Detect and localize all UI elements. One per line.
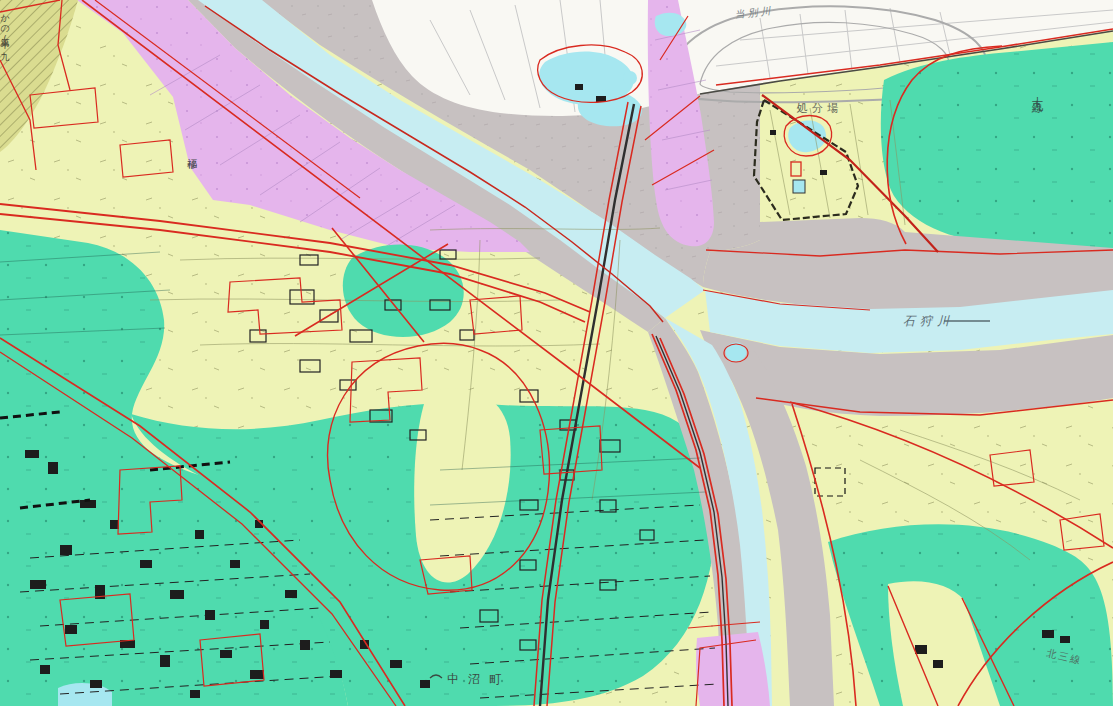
label-disposal-site: 処分場 bbox=[796, 102, 842, 115]
label-nakanuma-cho: 中沼町 bbox=[447, 672, 510, 686]
map-canvas[interactable]: 当別川 処分場 十九線 石狩川 福移 中沼町 北三線 かの第二半(九 bbox=[0, 0, 1113, 706]
land-use-map: 当別川 処分場 十九線 石狩川 福移 中沼町 北三線 かの第二半(九 bbox=[0, 0, 1113, 706]
